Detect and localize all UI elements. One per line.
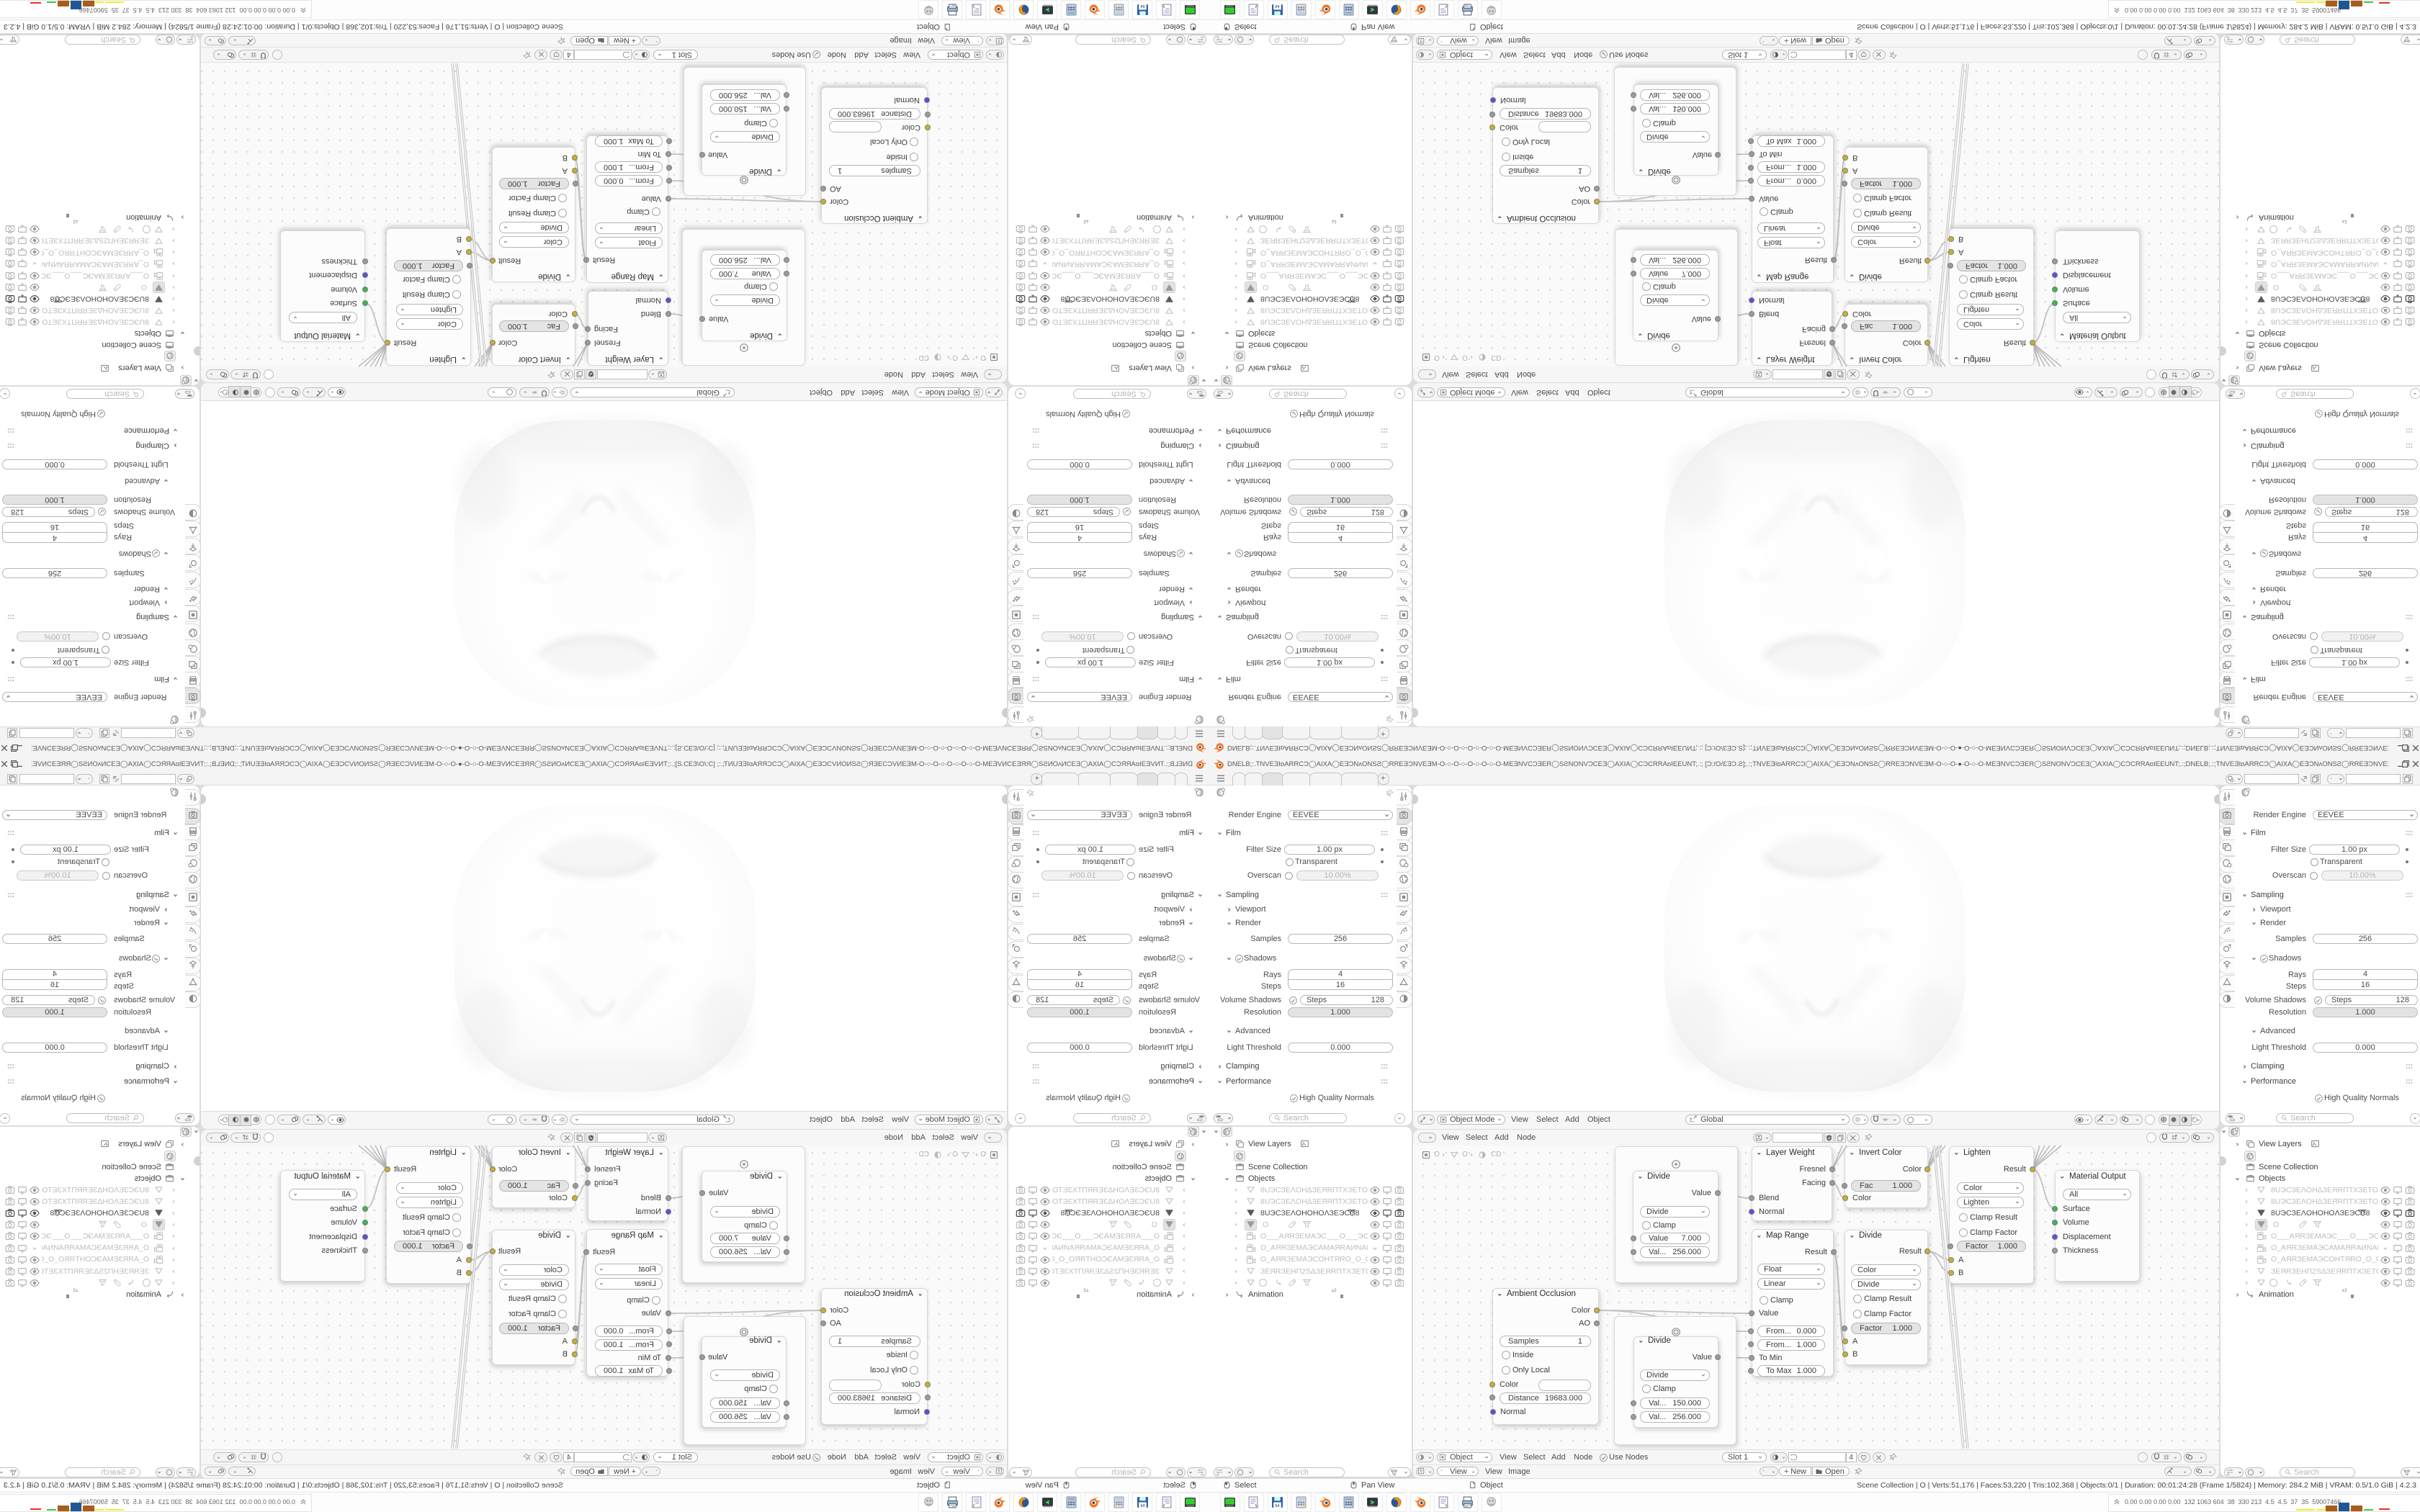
svg-text:64: 64 <box>1276 4 1280 8</box>
svg-text:64: 64 <box>1141 4 1145 8</box>
svg-text:64: 64 <box>1276 1504 1280 1508</box>
svg-text:64: 64 <box>1141 1504 1145 1508</box>
